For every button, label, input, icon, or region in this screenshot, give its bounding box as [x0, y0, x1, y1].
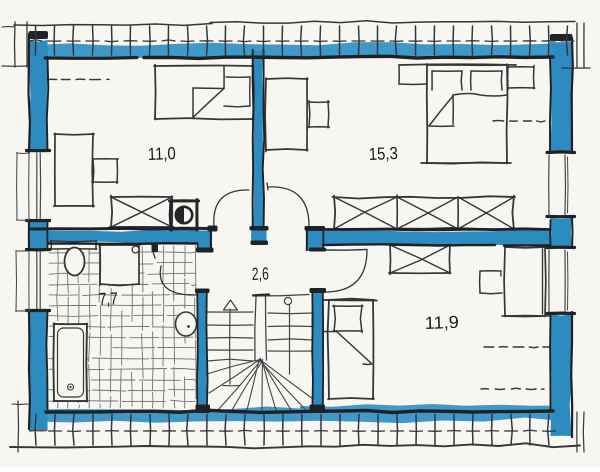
svg-text:7,7: 7,7	[98, 288, 118, 309]
svg-text:11,0: 11,0	[147, 143, 176, 164]
svg-text:11,9: 11,9	[424, 312, 459, 333]
svg-text:15,3: 15,3	[368, 143, 398, 164]
svg-text:2,6: 2,6	[251, 263, 269, 284]
